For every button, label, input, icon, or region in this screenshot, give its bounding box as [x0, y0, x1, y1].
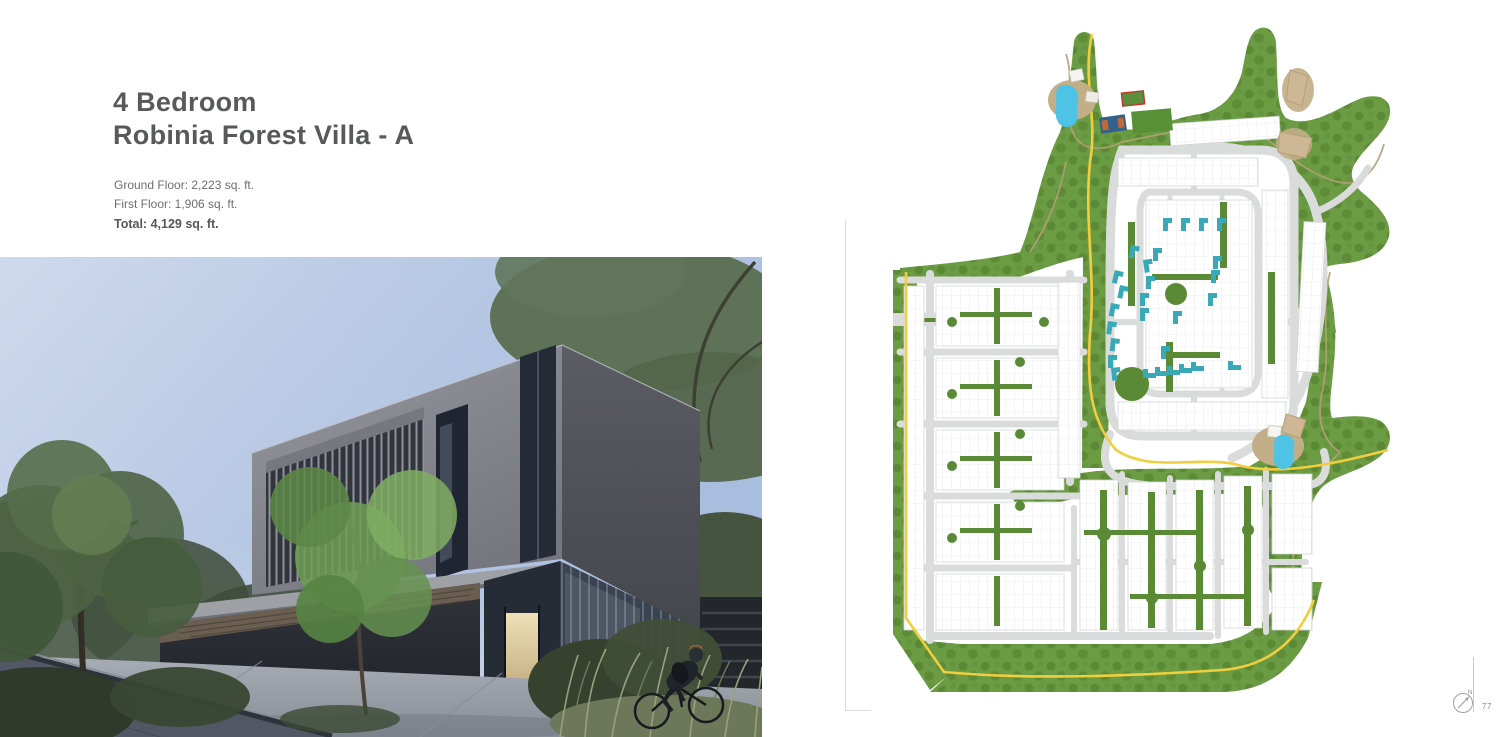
amenity-park-top [1048, 69, 1173, 134]
sports-court [1121, 91, 1144, 106]
brochure-spread: 4 Bedroom Robinia Forest Villa - A Groun… [0, 0, 1500, 737]
masterplan-graphic [870, 22, 1402, 698]
spec-ground-floor: Ground Floor: 2,223 sq. ft. [114, 176, 254, 195]
masterplan-map [870, 22, 1402, 698]
page-title: 4 Bedroom Robinia Forest Villa - A [113, 86, 414, 152]
lawn-court [1131, 108, 1173, 133]
spec-first-floor: First Floor: 1,906 sq. ft. [114, 195, 254, 214]
divider-rule-vertical [845, 220, 846, 711]
villa-rendering-graphic [0, 257, 762, 737]
page-number-right: 77 [1482, 702, 1492, 711]
title-line-1: 4 Bedroom [113, 87, 257, 117]
compass-north-label: N [1468, 690, 1472, 696]
lagoon-pool [1056, 85, 1079, 127]
floor-specs: Ground Floor: 2,223 sq. ft. First Floor:… [114, 176, 254, 214]
title-line-2: Robinia Forest Villa - A [113, 120, 414, 150]
spec-total: Total: 4,129 sq. ft. [114, 217, 219, 231]
villa-rendering-photo: 76 [0, 257, 762, 737]
divider-rule-foot [845, 710, 871, 711]
